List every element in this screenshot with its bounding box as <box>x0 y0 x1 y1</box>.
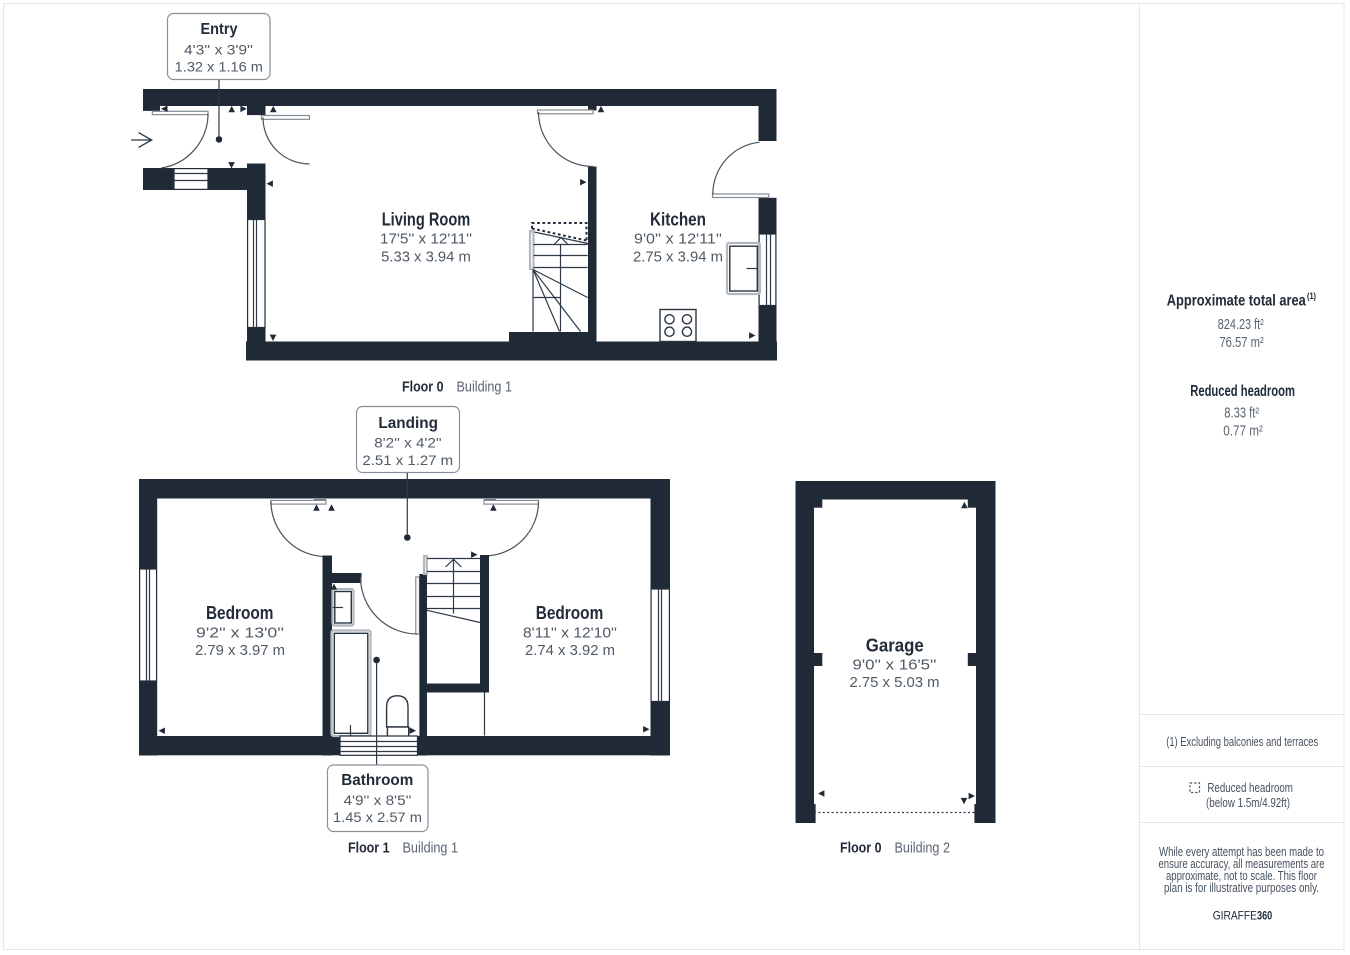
svg-text:360: 360 <box>1257 909 1273 923</box>
svg-text:Garage: Garage <box>866 636 924 656</box>
svg-text:8'2'' x 4'2'': 8'2'' x 4'2'' <box>374 435 441 450</box>
svg-text:Floor 0: Floor 0 <box>840 841 882 857</box>
svg-text:(below 1.5m/4.92ft): (below 1.5m/4.92ft) <box>1206 796 1290 810</box>
svg-text:Bathroom: Bathroom <box>341 772 413 789</box>
svg-text:Bedroom: Bedroom <box>536 603 604 623</box>
svg-text:Bedroom: Bedroom <box>206 603 274 623</box>
svg-text:Entry: Entry <box>201 21 238 38</box>
svg-text:Approximate total area: Approximate total area <box>1167 292 1306 309</box>
svg-text:Floor 1: Floor 1 <box>348 841 390 857</box>
svg-text:Floor 0: Floor 0 <box>402 380 444 396</box>
svg-text:8.33 ft²: 8.33 ft² <box>1224 406 1259 422</box>
svg-text:Building 2: Building 2 <box>895 841 951 857</box>
svg-text:(1) Excluding balconies and te: (1) Excluding balconies and terraces <box>1166 735 1318 749</box>
svg-text:Living Room: Living Room <box>382 209 471 229</box>
svg-text:9'0'' x 16'5'': 9'0'' x 16'5'' <box>853 657 937 673</box>
svg-text:Reduced headroom: Reduced headroom <box>1207 781 1293 795</box>
svg-text:Building 1: Building 1 <box>457 380 513 396</box>
svg-text:824.23 ft²: 824.23 ft² <box>1218 317 1264 333</box>
svg-text:2.75 x 5.03 m: 2.75 x 5.03 m <box>850 675 940 691</box>
svg-text:17'5'' x 12'11'': 17'5'' x 12'11'' <box>380 232 472 248</box>
svg-text:Landing: Landing <box>378 415 438 432</box>
svg-text:GIRAFFE: GIRAFFE <box>1213 909 1257 923</box>
svg-text:1.45 x 2.57 m: 1.45 x 2.57 m <box>333 810 422 825</box>
svg-text:1.32 x 1.16 m: 1.32 x 1.16 m <box>175 59 263 74</box>
svg-text:76.57 m²: 76.57 m² <box>1219 335 1263 351</box>
svg-text:4'3'' x 3'9'': 4'3'' x 3'9'' <box>184 42 253 57</box>
svg-text:2.51 x 1.27 m: 2.51 x 1.27 m <box>362 453 453 468</box>
svg-text:Kitchen: Kitchen <box>650 209 706 229</box>
svg-text:4'9'' x 8'5'': 4'9'' x 8'5'' <box>344 793 412 808</box>
svg-text:plan is for illustrative purpo: plan is for illustrative purposes only. <box>1164 881 1319 895</box>
svg-text:9'0'' x 12'11'': 9'0'' x 12'11'' <box>634 232 722 248</box>
svg-text:Building 1: Building 1 <box>403 841 459 857</box>
svg-text:(1): (1) <box>1307 291 1316 301</box>
svg-text:9'2'' x 13'0'': 9'2'' x 13'0'' <box>196 625 284 641</box>
svg-text:8'11'' x 12'10'': 8'11'' x 12'10'' <box>523 625 617 641</box>
svg-text:2.75 x 3.94 m: 2.75 x 3.94 m <box>633 249 723 265</box>
svg-text:0.77 m²: 0.77 m² <box>1223 424 1263 440</box>
svg-text:5.33 x 3.94 m: 5.33 x 3.94 m <box>381 249 471 265</box>
svg-text:Reduced headroom: Reduced headroom <box>1190 383 1295 400</box>
svg-text:2.74 x 3.92 m: 2.74 x 3.92 m <box>525 643 615 659</box>
svg-text:2.79 x 3.97 m: 2.79 x 3.97 m <box>195 643 285 659</box>
